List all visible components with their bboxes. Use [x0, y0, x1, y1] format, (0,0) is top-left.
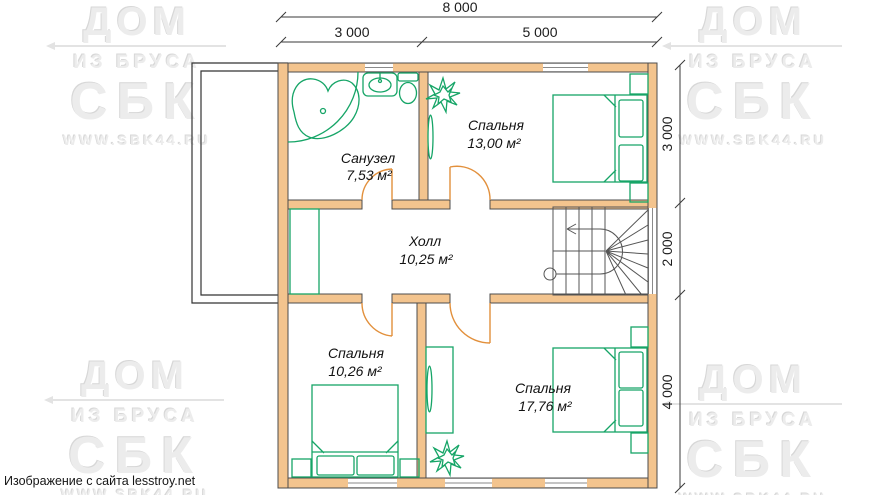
room-labels: Санузел 7,53 м² Спальня 13,00 м² Холл 10… [328, 117, 573, 414]
room-area: 13,00 м² [467, 135, 522, 151]
nightstand [400, 459, 419, 477]
wall-bedrooms [417, 303, 426, 478]
door-bedroom-bottom-right [450, 303, 490, 343]
door-bedroom-bottom-left [362, 303, 392, 336]
room-area: 7,53 м² [346, 167, 393, 183]
nightstand [630, 183, 648, 202]
room-label: Санузел [341, 150, 395, 166]
nightstand [630, 74, 648, 94]
dimension-label: 4 000 [659, 374, 675, 409]
room-label: Холл [408, 233, 441, 249]
room-area: 17,76 м² [518, 398, 573, 414]
wall-hall-bottom [392, 294, 450, 303]
balcony-outline [192, 63, 288, 303]
room-area: 10,25 м² [399, 251, 454, 267]
window [365, 63, 393, 72]
bathtub [292, 79, 359, 139]
nightstand [631, 433, 648, 453]
window [545, 478, 587, 488]
newel-post [544, 268, 556, 280]
bed-bedroom-bottom-left [312, 385, 398, 477]
wardrobe-bedroom [426, 347, 453, 433]
room-area: 10,26 м² [328, 363, 383, 379]
dimension-label: 3 000 [659, 116, 675, 151]
floor-plan: 8 000 3 000 5 000 3 000 2 000 4 000 Сану… [0, 0, 880, 495]
wall-hall-bottom [288, 294, 362, 303]
room-label: Спальня [515, 380, 571, 396]
wall-bath-bedroom [419, 72, 428, 200]
bathroom-fixtures [288, 72, 418, 142]
toilet [398, 73, 418, 104]
wardrobe-hall [290, 209, 319, 294]
room-label: Спальня [468, 117, 524, 133]
plant-icon [426, 78, 460, 112]
wall-hall-top [392, 200, 450, 209]
wall-top [278, 63, 657, 72]
image-credit: Изображение с сайта lesstroy.net [4, 474, 195, 488]
nightstand [292, 459, 311, 477]
dimension-label: 5 000 [522, 24, 557, 40]
bed-bedroom-top [553, 95, 647, 182]
floor-plan-page: ДОМ ИЗ БРУСА СБК WWW.SBK44.RU ДОМ ИЗ БРУ… [0, 0, 880, 495]
door-bedroom-top [450, 166, 490, 200]
sink [363, 73, 397, 96]
nightstand [631, 327, 648, 347]
wall-left [278, 63, 288, 488]
wall-hall-top [490, 200, 648, 209]
window [543, 63, 588, 72]
plant-icon [430, 441, 464, 475]
dimension-label: 3 000 [334, 24, 369, 40]
window [445, 478, 492, 488]
wall-hall-top [288, 200, 362, 209]
wall-mirror [428, 115, 433, 159]
dimension-label: 2 000 [659, 231, 675, 266]
window [648, 208, 657, 294]
window [348, 478, 397, 488]
dimension-label: 8 000 [442, 0, 477, 15]
wall-mirror [427, 366, 432, 412]
staircase [544, 207, 648, 295]
winder-steps [606, 210, 648, 295]
room-label: Спальня [328, 345, 384, 361]
bathtub-drain [321, 109, 326, 114]
